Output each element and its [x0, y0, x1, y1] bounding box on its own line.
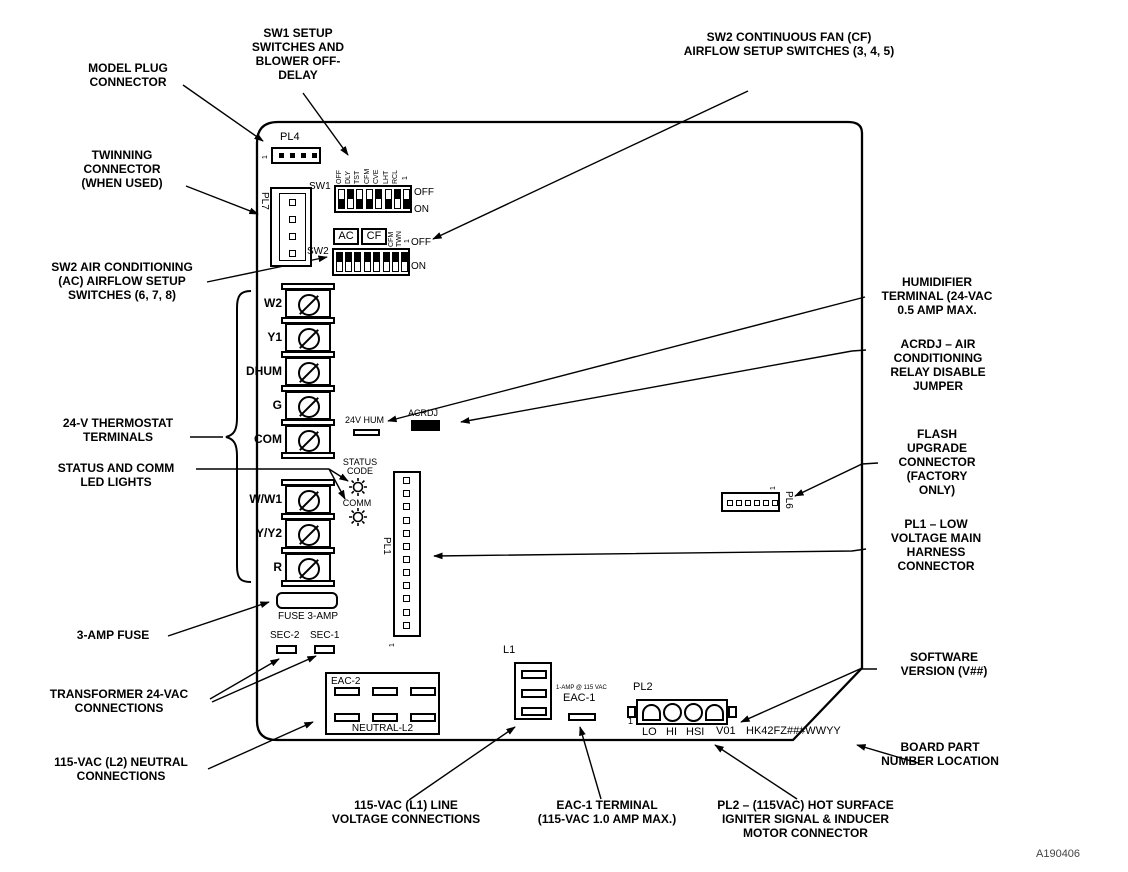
pl4-label: PL4 — [280, 132, 300, 143]
terminal-label-r: R — [226, 561, 282, 573]
fuse-label: FUSE 3-AMP — [276, 612, 340, 622]
terminal-label-dhum: DHUM — [226, 365, 282, 377]
hum-terminal[interactable] — [353, 429, 380, 436]
l1-terminal[interactable] — [521, 670, 547, 679]
terminal-label-yy2: Y/Y2 — [226, 527, 282, 539]
pl1-pin — [403, 569, 410, 576]
status-led-label: STATUS CODE — [333, 458, 387, 476]
callout-model-plug: MODEL PLUG CONNECTOR — [66, 62, 190, 90]
neutral-terminal[interactable] — [410, 713, 436, 722]
sw1-off-label: OFF — [414, 188, 434, 198]
l1-terminal[interactable] — [521, 689, 547, 698]
sw2-label: SW2 — [307, 247, 329, 257]
software-version: V01 — [716, 726, 736, 737]
sw1-pin-label: CVE — [373, 170, 380, 184]
pl2-pin1-marker: 1 — [628, 717, 633, 726]
l1-terminal[interactable] — [521, 707, 547, 716]
sw1-toggle-4[interactable] — [366, 189, 373, 209]
sw2-ac-box: AC — [333, 228, 359, 245]
eac1-terminal[interactable] — [568, 713, 596, 721]
neutral-terminal[interactable] — [372, 687, 398, 696]
pl1-label: PL1 — [381, 537, 391, 555]
leader-fuse — [168, 602, 269, 636]
pl2-tab-right — [728, 706, 737, 718]
sw1-toggle-8[interactable] — [403, 189, 410, 209]
pl4-pin — [290, 153, 295, 158]
pl1-pin — [403, 543, 410, 550]
terminal-strip-cap — [281, 419, 335, 426]
callout-transformer: TRANSFORMER 24-VAC CONNECTIONS — [24, 688, 214, 716]
callout-software: SOFTWARE VERSION (V##) — [874, 651, 1014, 679]
screw-icon — [298, 490, 320, 512]
sw1-toggle-1[interactable] — [338, 189, 345, 209]
pl4-pin1-marker: 1 — [262, 155, 269, 159]
pl1-pin — [403, 556, 410, 563]
sw2-toggle-1[interactable] — [336, 252, 343, 272]
hum-terminal-label: 24V HUM — [345, 416, 384, 425]
callout-pl1: PL1 – LOW VOLTAGE MAIN HARNESS CONNECTOR — [866, 518, 1006, 574]
comm-led-label: COMM — [332, 499, 382, 508]
pl1-pin — [403, 609, 410, 616]
pl1-pin — [403, 490, 410, 497]
sw2-toggle-3[interactable] — [354, 252, 361, 272]
sec1-label: SEC-1 — [310, 631, 339, 641]
board-outline — [257, 122, 862, 740]
pl7-pin — [289, 216, 296, 223]
pl2-pin-label-hi: HI — [666, 727, 677, 738]
fuse[interactable] — [276, 592, 338, 609]
terminal-strip-cap — [281, 479, 335, 486]
sw2-pin-label: CFM — [388, 232, 395, 247]
terminal-strip-cap — [281, 580, 335, 587]
sw2-toggle-2[interactable] — [345, 252, 352, 272]
callout-humidifier: HUMIDIFIER TERMINAL (24-VAC 0.5 AMP MAX. — [862, 276, 1012, 318]
sec1-terminal[interactable] — [314, 645, 335, 654]
pl2-connector — [636, 699, 728, 725]
terminal-y1[interactable] — [285, 323, 331, 352]
pl7-pin — [289, 250, 296, 257]
neutral-l2-block: EAC-2 NEUTRAL-L2 — [325, 672, 440, 735]
sw2-off-label: OFF — [411, 238, 431, 248]
pl2-pin-label-hsi: HSI — [686, 727, 704, 738]
pl7-pin — [289, 199, 296, 206]
sw2-toggle-7[interactable] — [392, 252, 399, 272]
sw1-dip-switch[interactable] — [334, 185, 412, 213]
leader-twinning — [186, 186, 258, 214]
terminal-g[interactable] — [285, 391, 331, 420]
screw-icon — [298, 524, 320, 546]
terminal-strip-cap — [281, 317, 335, 324]
pl4-connector — [271, 147, 321, 164]
sw2-toggle-8[interactable] — [401, 252, 408, 272]
callout-status-comm: STATUS AND COMM LED LIGHTS — [40, 462, 192, 490]
callout-thermostat: 24-V THERMOSTAT TERMINALS — [48, 417, 188, 445]
sw1-toggle-7[interactable] — [394, 189, 401, 209]
pl1-pin1-marker: 1 — [389, 643, 396, 647]
screw-icon — [298, 294, 320, 316]
callout-eac1: EAC-1 TERMINAL (115-VAC 1.0 AMP MAX.) — [512, 799, 702, 827]
leader-model-plug — [183, 85, 263, 141]
figure-id: A190406 — [1036, 848, 1080, 860]
sw1-pin-label: LHT — [383, 171, 390, 184]
terminal-label-ww1: W/W1 — [226, 493, 282, 505]
pl2-pin-label-lo: LO — [642, 727, 657, 738]
pl6-label: PL6 — [783, 491, 793, 509]
eac2-label: EAC-2 — [331, 677, 360, 687]
terminal-com[interactable] — [285, 425, 331, 454]
sw1-on-label: ON — [414, 205, 429, 215]
screw-icon — [298, 558, 320, 580]
screw-icon — [298, 430, 320, 452]
screw-icon — [298, 362, 320, 384]
diagram-canvas: MODEL PLUG CONNECTOR SW1 SETUP SWITCHES … — [0, 0, 1128, 872]
sw2-pin-label: TWN — [396, 231, 403, 247]
callout-sw2-ac: SW2 AIR CONDITIONING (AC) AIRFLOW SETUP … — [36, 261, 208, 303]
terminal-label-com: COM — [226, 433, 282, 445]
leader-pl2 — [715, 745, 797, 799]
pl1-pin — [403, 503, 410, 510]
pl4-pin — [312, 153, 317, 158]
pl1-pin — [403, 595, 410, 602]
pl2-socket-hi — [663, 703, 682, 722]
callout-sw2-cf: SW2 CONTINUOUS FAN (CF) AIRFLOW SETUP SW… — [634, 31, 944, 59]
terminal-yy2[interactable] — [285, 519, 331, 548]
sw2-cf-box: CF — [361, 228, 387, 245]
pl2-label: PL2 — [633, 682, 653, 693]
callout-fuse: 3-AMP FUSE — [58, 629, 168, 643]
eac2-terminal[interactable] — [334, 687, 360, 696]
sw1-pin-label: DLY — [345, 171, 352, 184]
sw2-toggle-4[interactable] — [364, 252, 371, 272]
sw1-toggle-3[interactable] — [356, 189, 363, 209]
sw1-pin-label: RCL — [392, 170, 399, 184]
terminal-strip-cap — [281, 513, 335, 520]
sw1-pin-label: OFF — [336, 170, 343, 184]
callout-acrdj: ACRDJ – AIR CONDITIONING RELAY DISABLE J… — [868, 338, 1008, 394]
callout-twinning: TWINNING CONNECTOR (WHEN USED) — [60, 149, 184, 191]
sw2-toggle-5[interactable] — [373, 252, 380, 272]
terminal-strip-cap — [281, 385, 335, 392]
pl2-socket-lo — [642, 704, 661, 721]
sw1-pin-label: 1 — [402, 176, 409, 180]
sw1-toggle-6[interactable] — [385, 189, 392, 209]
terminal-dhum[interactable] — [285, 357, 331, 386]
neutral-terminal[interactable] — [372, 713, 398, 722]
sec2-terminal[interactable] — [276, 645, 297, 654]
terminal-label-g: G — [226, 399, 282, 411]
sw1-pin-label: CFM — [364, 169, 371, 184]
pl6-pin — [772, 500, 778, 506]
pl1-pin — [403, 622, 410, 629]
callout-l2-neutral: 115-VAC (L2) NEUTRAL CONNECTIONS — [32, 756, 210, 784]
pl1-pin — [403, 517, 410, 524]
sec2-label: SEC-2 — [270, 631, 299, 641]
callout-flash: FLASH UPGRADE CONNECTOR (FACTORY ONLY) — [876, 428, 998, 498]
pl1-pin — [403, 477, 410, 484]
pl1-pin — [403, 530, 410, 537]
pl7-label: PL7 — [259, 192, 269, 210]
pl6-pin — [736, 500, 742, 506]
callout-l1-line: 115-VAC (L1) LINE VOLTAGE CONNECTIONS — [308, 799, 504, 827]
terminal-label-w2: W2 — [226, 297, 282, 309]
pl4-pin — [301, 153, 306, 158]
terminal-strip-cap — [281, 547, 335, 554]
pl2-socket — [705, 704, 724, 721]
pl6-pin — [727, 500, 733, 506]
terminal-strip-cap — [281, 283, 335, 290]
terminal-strip-cap — [281, 452, 335, 459]
eac1-rating: 1-AMP @ 115 VAC — [556, 685, 607, 691]
pl1-pin — [403, 582, 410, 589]
sw1-toggle-2[interactable] — [347, 189, 354, 209]
pl6-connector — [721, 492, 780, 512]
board-part-number: HK42FZ###WWYY — [746, 726, 841, 737]
acrdj-jumper[interactable] — [411, 420, 440, 431]
sw2-on-label: ON — [411, 262, 426, 272]
screw-icon — [298, 328, 320, 350]
sw1-label: SW1 — [309, 182, 331, 192]
neutral-terminal[interactable] — [334, 713, 360, 722]
sw2-dip-switch[interactable] — [332, 248, 410, 276]
pl6-pin — [745, 500, 751, 506]
pl6-pin1-marker: 1 — [770, 486, 777, 490]
eac1-label: EAC-1 — [563, 693, 595, 704]
neutral-l2-label: NEUTRAL-L2 — [327, 724, 438, 734]
neutral-terminal[interactable] — [410, 687, 436, 696]
callout-pl2: PL2 – (115VAC) HOT SURFACE IGNITER SIGNA… — [688, 799, 923, 841]
sw2-pin-label: 1 — [404, 239, 411, 243]
terminal-label-y1: Y1 — [226, 331, 282, 343]
sw1-toggle-5[interactable] — [375, 189, 382, 209]
terminal-w2[interactable] — [285, 289, 331, 318]
sw2-toggle-6[interactable] — [383, 252, 390, 272]
screw-icon — [298, 396, 320, 418]
terminal-r[interactable] — [285, 553, 331, 582]
l1-label: L1 — [503, 645, 515, 656]
pl1-connector — [393, 471, 421, 637]
acrdj-label: ACRDJ — [408, 409, 438, 418]
terminal-strip-cap — [281, 351, 335, 358]
pl6-pin — [763, 500, 769, 506]
callout-board-part: BOARD PART NUMBER LOCATION — [860, 741, 1020, 769]
pl4-pin — [279, 153, 284, 158]
sw1-pin-label: TST — [354, 171, 361, 184]
terminal-ww1[interactable] — [285, 485, 331, 514]
l1-block — [514, 662, 552, 720]
pl7-pin — [289, 233, 296, 240]
pl6-pin — [754, 500, 760, 506]
callout-sw1-setup: SW1 SETUP SWITCHES AND BLOWER OFF- DELAY — [238, 27, 358, 83]
pl2-socket-hsi — [684, 703, 703, 722]
